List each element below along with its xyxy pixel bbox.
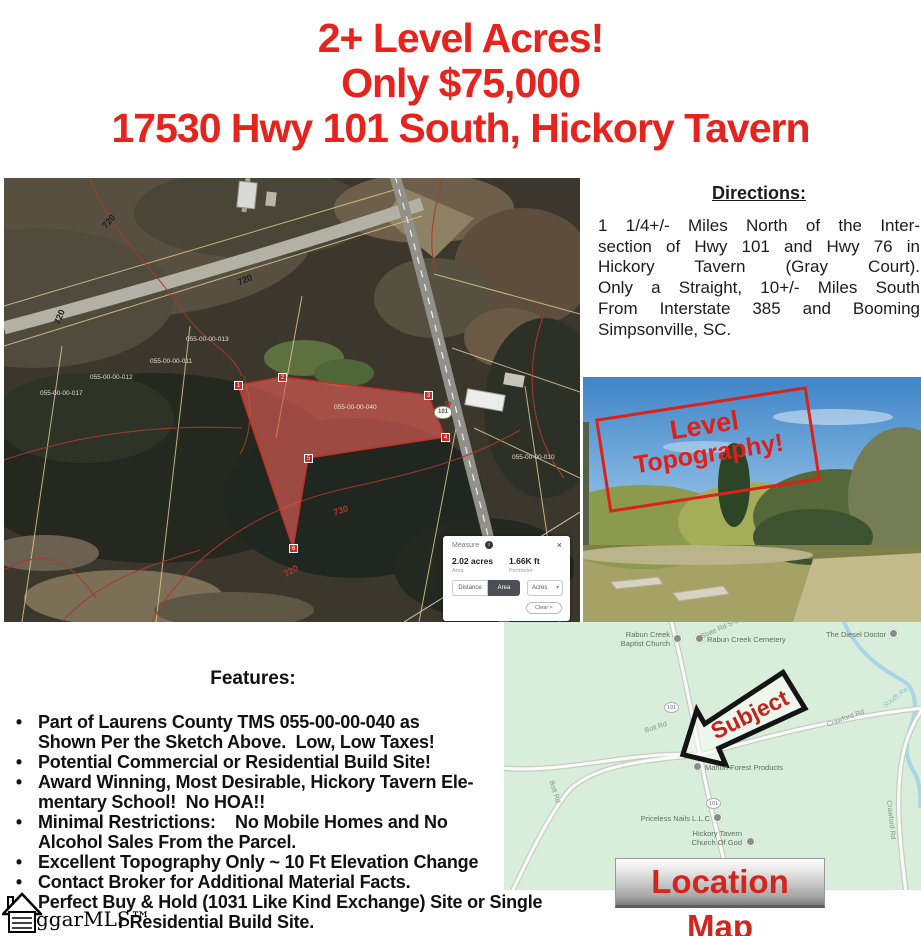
highway-101-shield: 101 (664, 702, 679, 713)
area-value: 2.02 acres (452, 556, 493, 566)
clear-button[interactable]: Clear × (526, 602, 562, 614)
headline-line2: Only $75,000 (0, 61, 921, 106)
directions-title: Directions: (598, 183, 920, 204)
perimeter-label: Perimeter (509, 568, 533, 574)
unit-select[interactable]: Acres ▾ (527, 580, 563, 596)
parcel-vertex-marker: 2 (278, 373, 287, 382)
feature-line: Contact Broker for Additional Material F… (38, 872, 600, 892)
poi-label: Hickory Tavern Church Of God (664, 829, 742, 847)
directions-body: 1 1/4+/- Miles North of the Inter-sectio… (598, 216, 920, 340)
directions-line: section of Hwy 101 and Hwy 76 in (598, 237, 920, 258)
parcel-id-label: 055-00-00-040 (334, 404, 377, 411)
poi-label: Rabun Creek Baptist Church (600, 630, 670, 648)
parcel-id-label: 055-00-00-013 (186, 336, 229, 343)
watermark-text: ggarMLS™ (36, 907, 151, 931)
info-icon[interactable]: i (485, 541, 493, 549)
feature-line: Alcohol Sales From the Parcel. (38, 832, 600, 852)
parcel-vertex-marker: 1 (234, 381, 243, 390)
feature-bullet: •Minimal Restrictions: No Mobile Homes a… (0, 812, 600, 852)
feature-line: Part of Laurens County TMS 055-00-00-040… (38, 712, 600, 732)
poi-icon-baptist-church (673, 634, 682, 643)
flyer-page: 2+ Level Acres! Only $75,000 17530 Hwy 1… (0, 0, 921, 936)
bullet-dot: • (0, 712, 38, 752)
poi-icon-hickory-church (746, 837, 755, 846)
parcel-id-label: 055-00-00-010 (512, 454, 555, 461)
feature-line: Excellent Topography Only ~ 10 Ft Elevat… (38, 852, 600, 872)
parcel-vertex-marker: 3 (424, 391, 433, 400)
location-map-banner: Location Map (615, 858, 825, 908)
highway-101-shield: 101 (434, 406, 452, 419)
directions-line: Only a Straight, 10+/- Miles South (598, 278, 920, 299)
aerial-sketch-map: 720 720 720 730 730 730 720 055-00-00-04… (4, 178, 580, 622)
parcel-id-label: 055-00-00-017 (40, 390, 83, 397)
poi-icon-mahon-forest (693, 762, 702, 771)
poi-label: Priceless Nails L.L.C (634, 814, 710, 823)
chevron-down-icon: ▾ (556, 581, 559, 595)
headline-line1: 2+ Level Acres! (0, 16, 921, 61)
measure-popup-title: Measure (452, 542, 479, 549)
parcel-vertex-marker: 5 (304, 454, 313, 463)
feature-line: Potential Commercial or Residential Buil… (38, 752, 600, 772)
directions-line: Simpsonville, SC. (598, 320, 920, 341)
poi-icon-priceless-nails (713, 813, 722, 822)
poi-label: Mahon Forest Products (705, 763, 783, 772)
parcel-id-label: 055-00-00-012 (90, 374, 133, 381)
headline: 2+ Level Acres! Only $75,000 17530 Hwy 1… (0, 16, 921, 151)
perimeter-value: 1.66K ft (509, 556, 540, 566)
headline-line3: 17530 Hwy 101 South, Hickory Tavern (0, 106, 921, 151)
poi-icon-diesel-doctor (889, 629, 898, 638)
feature-line: Award Winning, Most Desirable, Hickory T… (38, 772, 600, 792)
parcel-vertex-marker: 4 (441, 433, 450, 442)
close-icon[interactable]: × (557, 540, 562, 550)
distance-tab[interactable]: Distance (452, 580, 488, 596)
area-label: Area (452, 568, 464, 574)
bullet-dot: • (0, 852, 38, 872)
feature-bullet: •Excellent Topography Only ~ 10 Ft Eleva… (0, 852, 600, 872)
mls-watermark: ggarMLS™ (2, 891, 132, 936)
bullet-dot: • (0, 812, 38, 852)
poi-label: The Diesel Doctor (804, 630, 886, 639)
bullet-dot: • (0, 752, 38, 772)
area-tab[interactable]: Area (488, 580, 520, 596)
highway-101-shield: 101 (706, 798, 721, 809)
feature-bullet: •Part of Laurens County TMS 055-00-00-04… (0, 712, 600, 752)
bullet-dot: • (0, 772, 38, 812)
directions-line: Hickory Tavern (Gray Court). (598, 257, 920, 278)
feature-line: Shown Per the Sketch Above. Low, Low Tax… (38, 732, 600, 752)
feature-bullet: •Award Winning, Most Desirable, Hickory … (0, 772, 600, 812)
features-title: Features: (0, 668, 506, 690)
poi-label: Rabun Creek Cemetery (707, 635, 786, 644)
directions-line: From Interstate 385 and Booming (598, 299, 920, 320)
parcel-id-label: 055-00-00-011 (150, 358, 192, 365)
feature-line: mentary School! No HOA!! (38, 792, 600, 812)
bullet-dot: • (0, 872, 38, 892)
feature-line: Minimal Restrictions: No Mobile Homes an… (38, 812, 600, 832)
measure-popup: Measure i × 2.02 acres Area 1.66K ft Per… (443, 536, 570, 621)
directions-section: Directions: 1 1/4+/- Miles North of the … (598, 183, 920, 340)
property-photo: Level Topography! (583, 377, 921, 622)
directions-line: 1 1/4+/- Miles North of the Inter- (598, 216, 920, 237)
feature-bullet: •Contact Broker for Additional Material … (0, 872, 600, 892)
unit-select-value: Acres (532, 585, 547, 591)
parcel-vertex-marker: 6 (289, 544, 298, 553)
feature-bullet: •Potential Commercial or Residential Bui… (0, 752, 600, 772)
